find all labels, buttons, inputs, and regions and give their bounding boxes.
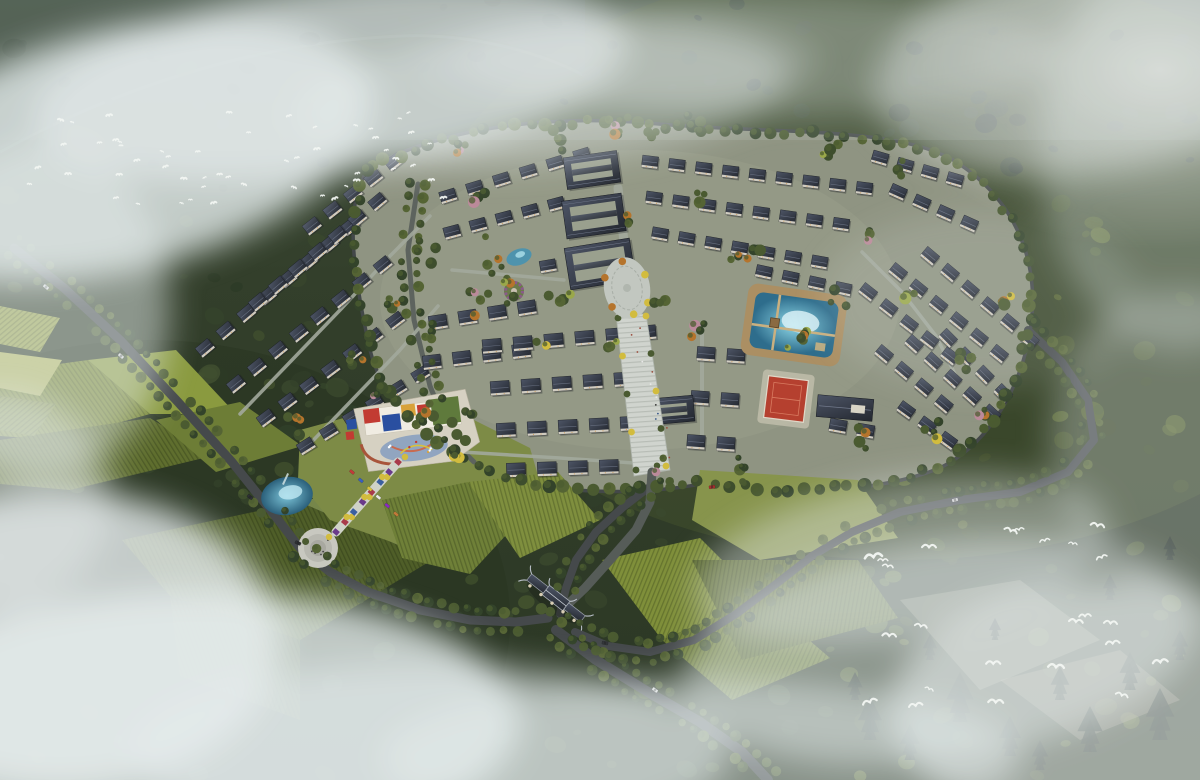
car [709,485,715,489]
red-roof-building [757,369,815,429]
community-building [816,395,874,422]
aerial-rendering [0,0,1200,780]
courtyard-house [562,193,629,241]
aerial-scene-svg [0,0,1200,780]
